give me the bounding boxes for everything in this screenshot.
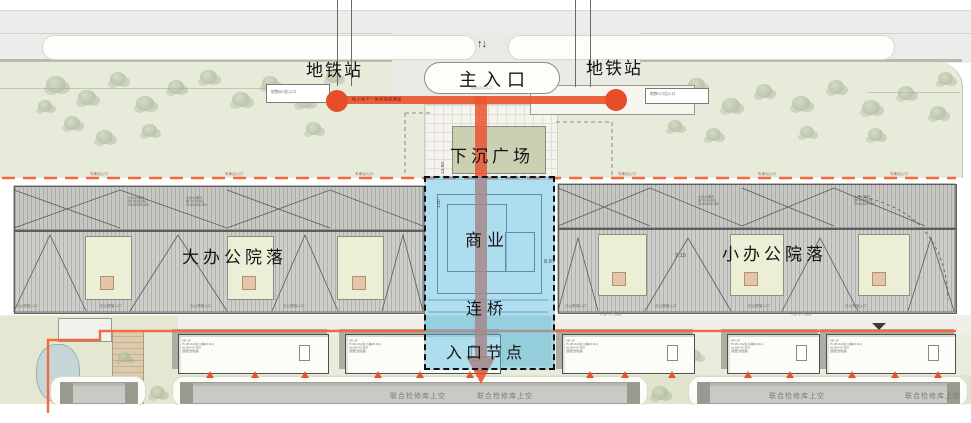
dimension: 7.20: [790, 254, 801, 260]
dorm-building: 6F/-1F H=26.3m(女儿墙26.3m) ±0.00=73.900 (装…: [727, 334, 820, 374]
flow-line-annotation: 地上地下一体化连接通道: [352, 96, 402, 102]
tree: [652, 386, 668, 400]
park-path-line-right: [868, 92, 960, 93]
dimension: 8.97: [544, 258, 555, 264]
tiny-annotation: 车库出入口: [90, 171, 108, 176]
subway-exit-left-label: 地铁B口出入口: [271, 89, 296, 94]
courtyard-pavilion: [352, 276, 366, 290]
courtyard-pavilion: [100, 276, 114, 290]
courtyard-pavilion: [612, 272, 626, 286]
tiny-annotation: 车库出入口: [890, 171, 908, 176]
dimension: 7.15: [675, 252, 686, 258]
bottom-white: [0, 405, 971, 423]
main-entrance-pill: 主入口 综合中心入口: [424, 62, 560, 94]
commercial-label: 商业: [465, 226, 509, 251]
tree: [868, 128, 883, 141]
courtyard: [85, 236, 132, 300]
courtyard: [337, 236, 384, 300]
subway-station-label-left: 地铁站: [306, 56, 363, 81]
building-core: [299, 345, 310, 361]
tiny-annotation: 办公院落入口: [565, 303, 587, 308]
building-core: [796, 345, 807, 361]
tiny-annotation: 内部车行道路: [600, 311, 622, 316]
courtyard: [598, 234, 647, 296]
tree: [64, 116, 80, 130]
tree: [706, 128, 721, 141]
depot-label: 联合检修库上空: [769, 391, 825, 401]
tiny-annotation: 车库出入口: [355, 171, 373, 176]
office-block-right-top: [558, 184, 957, 229]
tree: [142, 124, 157, 137]
tiny-annotation: 办公院落入口: [748, 303, 770, 308]
tree: [38, 100, 52, 112]
tree: [828, 80, 844, 94]
tiny-annotation: 办公院落入口: [100, 303, 122, 308]
depot-label: 联合检修库上空: [905, 391, 961, 401]
tree: [110, 72, 126, 86]
office-annotation: 小办公单元 6F H=24.0m 23.400/26.400: [854, 195, 875, 206]
road-lane-left: [42, 35, 476, 60]
depot-slab: [60, 382, 138, 404]
large-office-label: 大办公院落: [182, 243, 287, 268]
courtyard-pavilion: [872, 272, 886, 286]
depot-label: 联合检修库上空: [477, 391, 533, 401]
building-core: [928, 345, 939, 361]
tiny-annotation: 车库出入口: [618, 171, 636, 176]
building-core: [667, 345, 678, 361]
tiny-annotation: 办公院落入口: [283, 303, 305, 308]
two-way-arrow: ↑↓: [477, 38, 486, 50]
dimension: 13.90: [440, 162, 445, 174]
depot-label: 联合检修库上空: [390, 391, 446, 401]
tree: [150, 386, 165, 399]
entrance-node-label: 入口节点: [446, 339, 526, 363]
tiny-annotation: 内部车行道路: [790, 311, 812, 316]
tiny-annotation: 办公院落入口: [16, 303, 38, 308]
office-annotation: 小办公单元 6F H=24.0m 23.400/26.400: [186, 196, 207, 207]
bridge-label: 连桥: [466, 295, 508, 319]
courtyard-pavilion: [242, 276, 256, 290]
road-line: [575, 0, 576, 87]
sunken-plaza-label: 下沉广场: [450, 142, 534, 167]
office-annotation: 小办公单元 6F H=24.0m 23.400/26.400: [128, 196, 149, 207]
small-office-label: 小办公院落: [722, 240, 827, 265]
tree: [756, 84, 772, 98]
main-entrance-sub: 综合中心入口: [471, 85, 493, 90]
dorm-building: 6F/-1F H=26.3m(女儿墙26.3m) ±0.00=73.900 (装…: [562, 334, 695, 374]
dorm-building: 6F/-1F H=26.3m(女儿墙26.3m) ±0.00=73.900 (装…: [178, 334, 329, 374]
courtyard-pavilion: [744, 272, 758, 286]
tiny-annotation: 办公院落入口: [655, 303, 677, 308]
main-entrance-label: 主入口: [431, 66, 559, 92]
dimension: 1.00: [436, 199, 441, 208]
tree: [800, 126, 814, 138]
courtyard: [858, 234, 910, 296]
tree: [898, 86, 914, 100]
tree: [668, 120, 682, 132]
road-lane-right: [508, 35, 895, 60]
tree: [938, 72, 953, 85]
tree: [930, 106, 946, 120]
tree: [46, 76, 66, 93]
office-block-left-top: [14, 186, 425, 231]
dorm-building: 6F/-1F H=26.3m(女儿墙26.3m) ±0.00=73.900 (装…: [826, 334, 956, 374]
tiny-annotation: 车库出入口: [225, 171, 243, 176]
subway-station-label-right: 地铁站: [586, 54, 643, 79]
site-plan: 地铁C口出入口 地铁B口出入口 主入口 综合中心入口 小办公单元 6F H=24…: [0, 0, 971, 423]
tiny-annotation: 办公院落入口: [845, 303, 867, 308]
tree: [168, 80, 184, 94]
tiny-annotation: 办公院落入口: [190, 303, 212, 308]
tree: [306, 122, 321, 135]
subway-exit-right-label: 地铁C口出入口: [650, 91, 675, 96]
office-annotation: 小办公单元 6F H=24.0m 23.400/26.400: [698, 195, 719, 206]
utility-box: [58, 318, 112, 342]
park-path-line-left: [0, 88, 270, 89]
tiny-annotation: 车库出入口: [758, 171, 776, 176]
